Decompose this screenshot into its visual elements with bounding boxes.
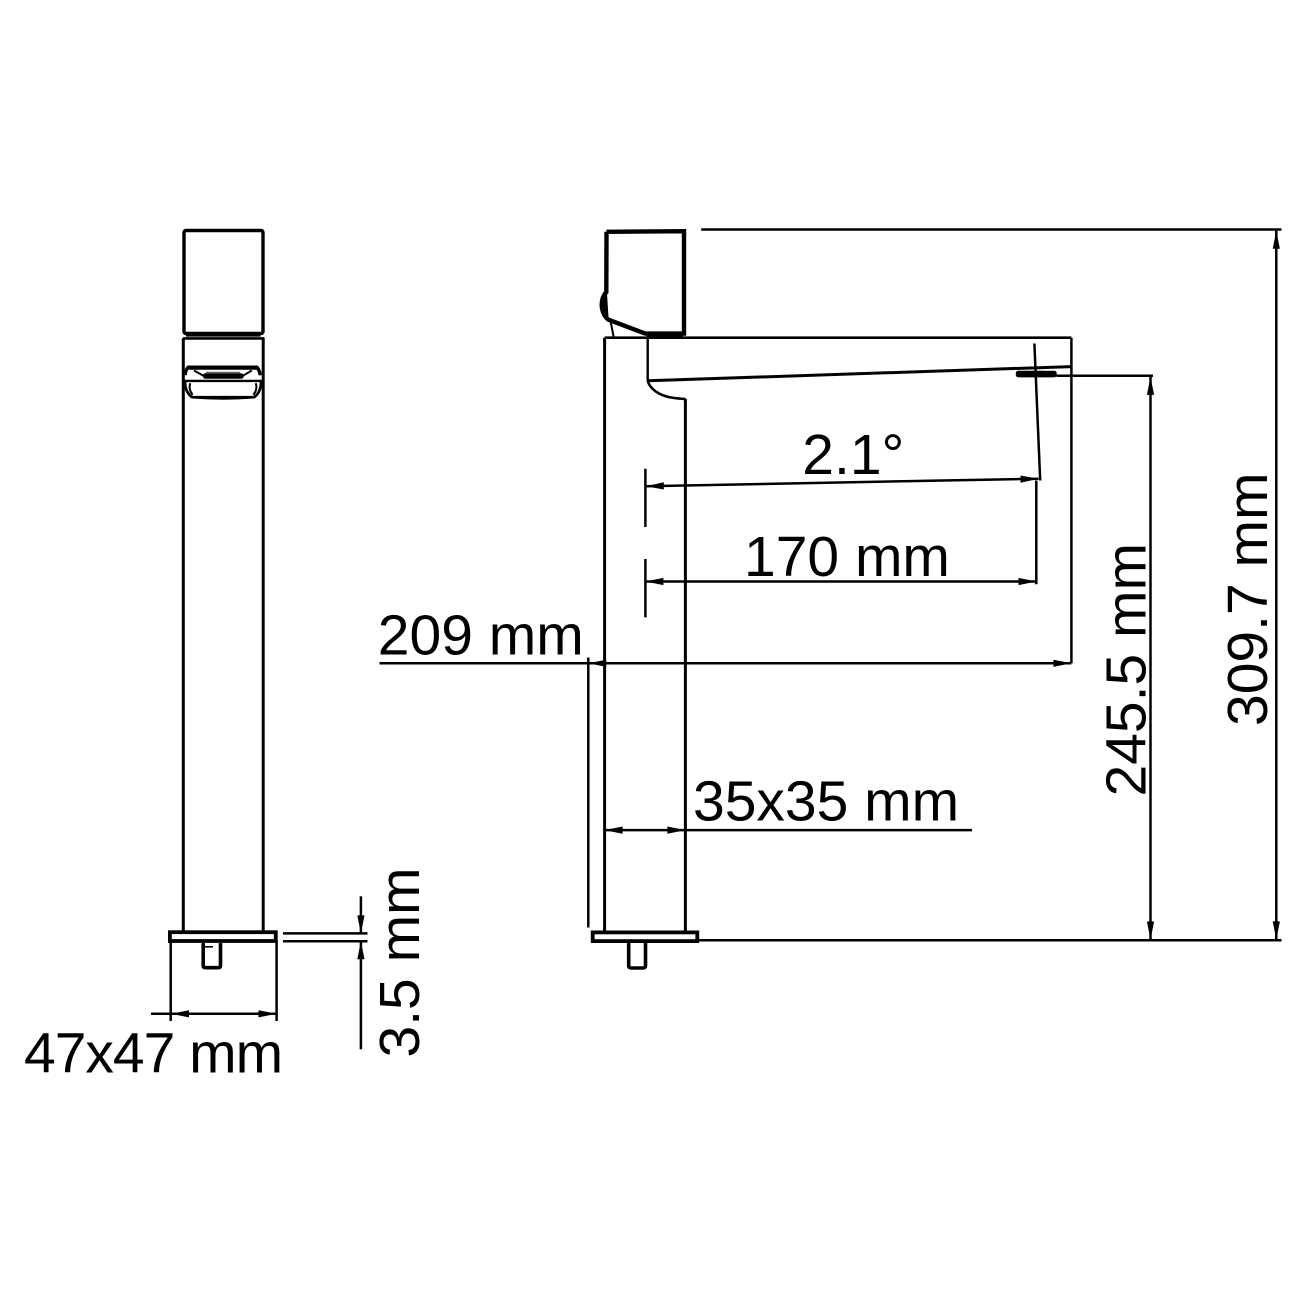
- svg-text:309.7 mm: 309.7 mm: [1216, 473, 1280, 726]
- svg-text:209 mm: 209 mm: [378, 604, 584, 668]
- svg-text:35x35 mm: 35x35 mm: [693, 769, 959, 833]
- svg-text:47x47 mm: 47x47 mm: [24, 1021, 282, 1085]
- svg-text:3.5 mm: 3.5 mm: [368, 867, 432, 1057]
- svg-text:2.1°: 2.1°: [802, 423, 904, 487]
- svg-text:170 mm: 170 mm: [744, 525, 950, 589]
- svg-text:245.5 mm: 245.5 mm: [1095, 543, 1159, 796]
